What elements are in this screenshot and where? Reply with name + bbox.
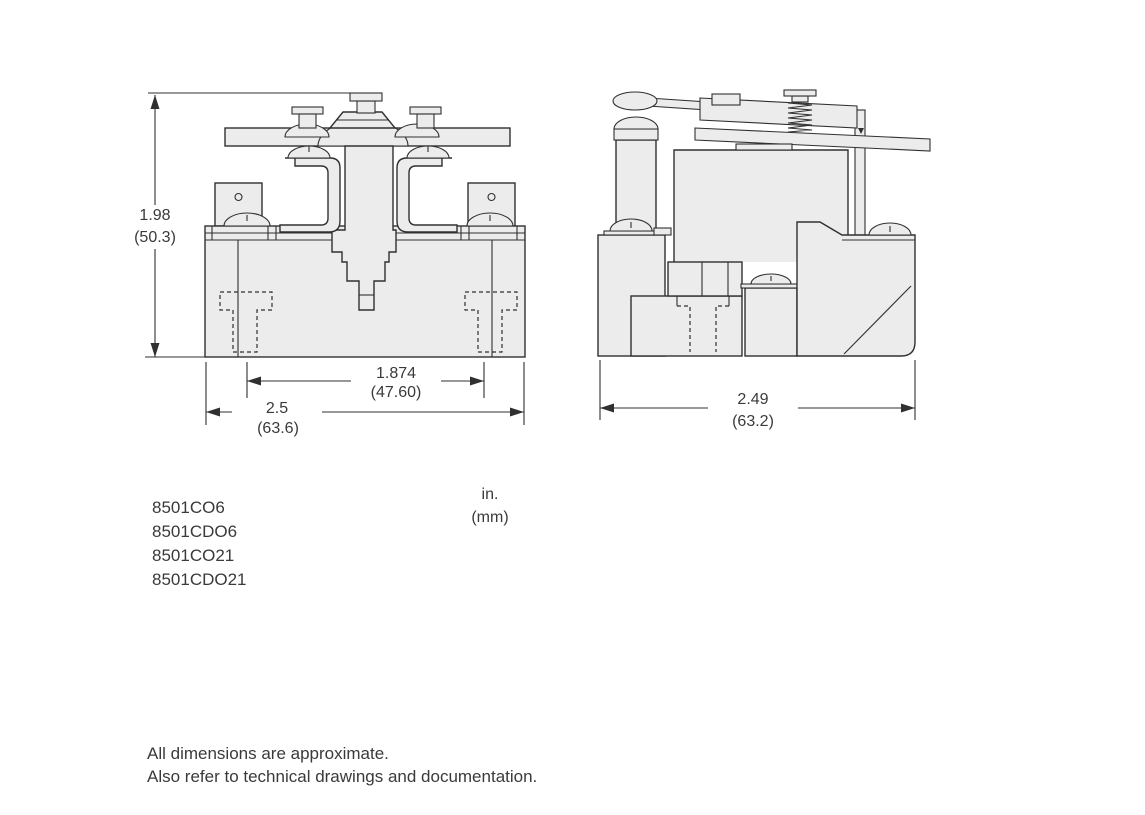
side-center-shelf (631, 296, 742, 356)
side-recessed-slot (668, 262, 742, 296)
side-right-block (797, 222, 915, 356)
mounting-width-in-label: 1.874 (351, 365, 441, 383)
side-left-terminal-stack (614, 117, 658, 232)
side-left-block-screw (604, 219, 671, 235)
part-number: 8501CDO6 (152, 520, 247, 544)
side-armature-end (613, 92, 657, 110)
part-number-list: 8501CO6 8501CDO6 8501CO21 8501CDO21 (152, 496, 247, 592)
front-left-screw (292, 107, 323, 128)
part-number: 8501CO21 (152, 544, 247, 568)
relay-dimension-drawing-page: 1.98 (50.3) 1.874 (47.60) 2.5 (63.6) 2.4… (0, 0, 1145, 815)
front-view (148, 93, 525, 357)
overall-depth-mm-label: (63.2) (708, 413, 798, 431)
side-spring-screw (784, 90, 816, 102)
units-inches: in. (445, 483, 535, 506)
relay-line-art (0, 0, 1145, 815)
footnote-line: Also refer to technical drawings and doc… (147, 765, 537, 788)
units-millimeters: (mm) (445, 506, 535, 529)
footnote-line: All dimensions are approximate. (147, 742, 537, 765)
side-view (598, 90, 930, 356)
units-legend: in. (mm) (445, 483, 535, 529)
front-right-contact-bracket (397, 146, 457, 232)
side-center-pedestal (741, 274, 801, 356)
overall-width-in-label: 2.5 (232, 400, 322, 417)
part-number: 8501CO6 (152, 496, 247, 520)
height-dimension-label: 1.98 (50.3) (112, 205, 198, 249)
overall-depth-in-label: 2.49 (708, 391, 798, 410)
mounting-width-mm-label: (47.60) (351, 384, 441, 402)
footnotes: All dimensions are approximate. Also ref… (147, 742, 537, 788)
side-contact-bar (695, 128, 930, 151)
side-coil-tab (736, 144, 792, 150)
part-number: 8501CDO21 (152, 568, 247, 592)
front-center-screw (350, 93, 382, 113)
overall-width-mm-label: (63.6) (233, 420, 323, 438)
front-left-contact-bracket (280, 146, 340, 232)
side-plate-block (712, 94, 740, 105)
height-in-value: 1.98 (112, 205, 198, 227)
height-mm-value: (50.3) (112, 227, 198, 249)
